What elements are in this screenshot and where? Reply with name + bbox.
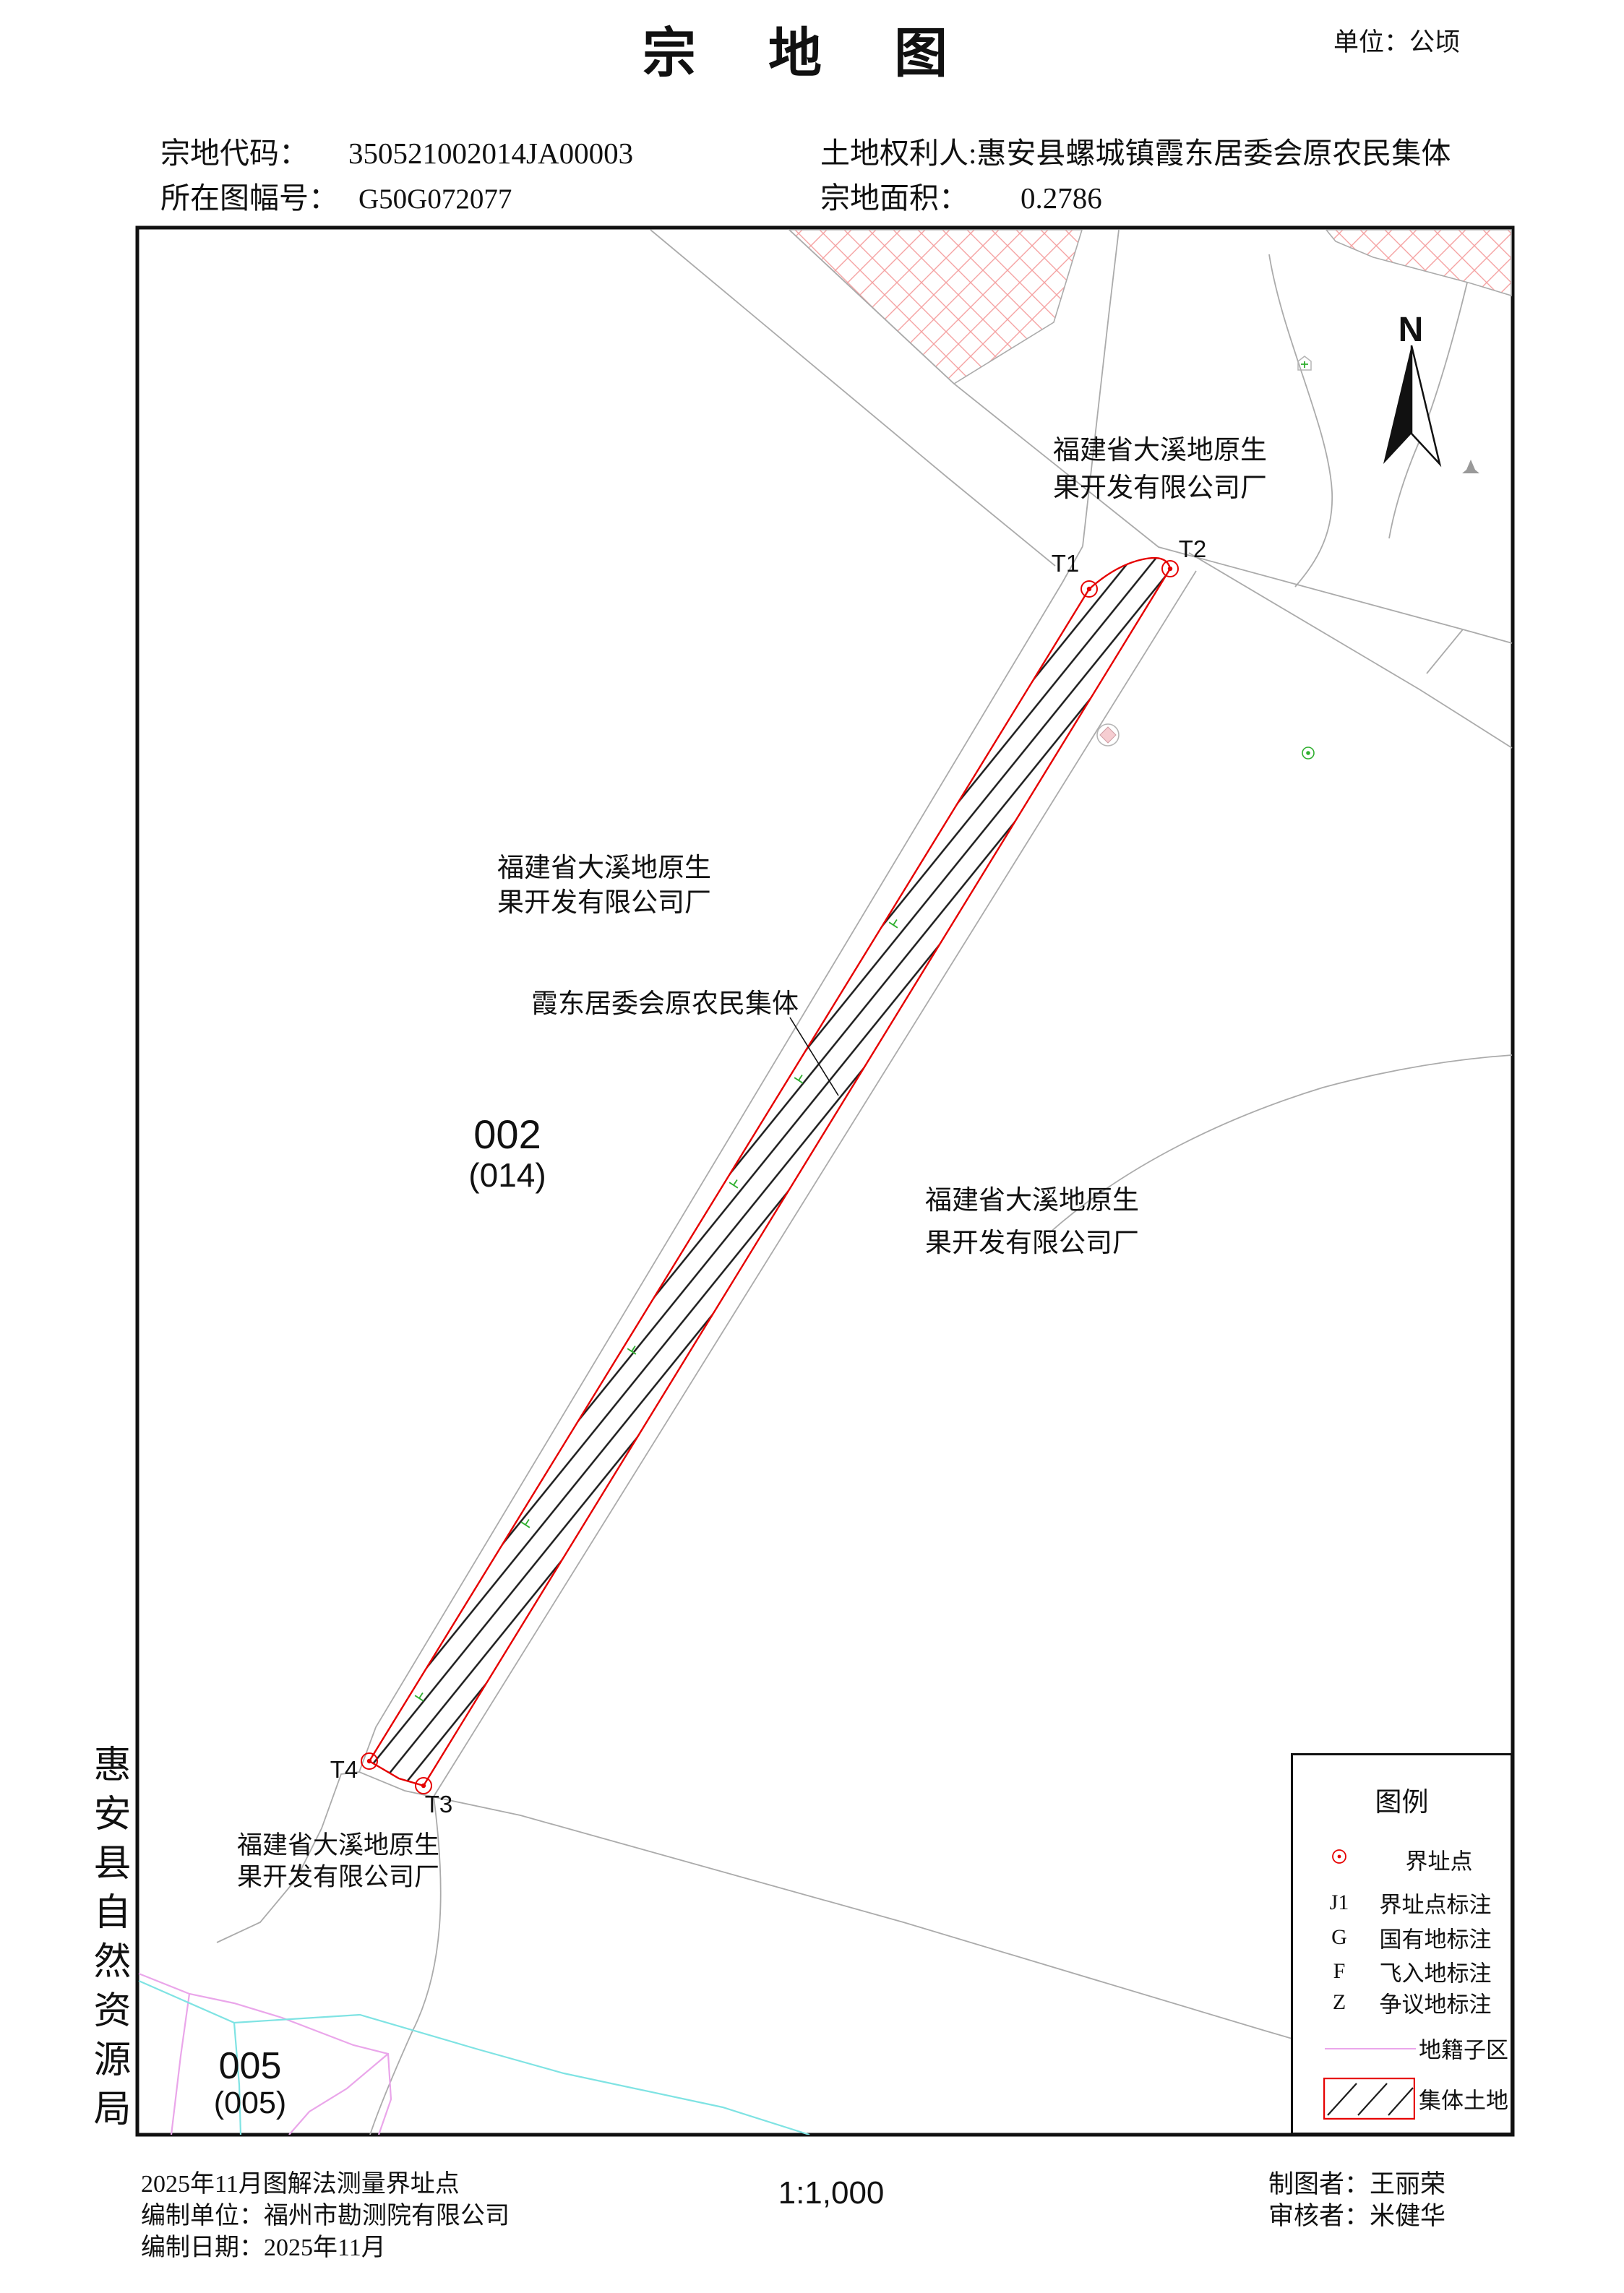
monument-symbol [1462,460,1479,473]
legend-symbol-z: Z [1333,1990,1346,2015]
legend-symbol-g: G [1331,1925,1347,1950]
legend-symbol-f: F [1333,1959,1346,1984]
boundary-line-strip-east [370,571,1196,2135]
north-label: N [1399,311,1424,349]
subzone-line-icon [1325,2048,1416,2049]
subzone-line-2 [289,2054,388,2135]
label-company-east: 福建省大溪地原生 果开发有限公司厂 [925,1179,1139,1265]
legend-label-point-anno: 界址点标注 [1380,1887,1492,1919]
parcel-map-page: 宗地图 单位：公顷 宗地代码：350521002014JA00003 所在图幅号… [0,0,1624,2293]
footer-survey-note: 2025年11月图解法测量界址点 [141,2164,460,2199]
scale-label: 1:1,000 [778,2175,885,2211]
survey-point-symbol [1097,724,1119,746]
legend-title: 图例 [1375,1780,1429,1819]
legend-row-point-anno: J1 界址点标注 [1293,1888,1511,1917]
state-land-crosshatch-area-right [1326,230,1511,296]
legend-label-boundary-point: 界址点 [1406,1844,1473,1876]
label-company-north-line1: 福建省大溪地原生 [1053,432,1267,470]
state-land-crosshatch-area-left [789,230,1082,384]
legend-label-subzone: 地籍子区 [1419,2032,1508,2065]
boundary-line-road-lower [1189,553,1512,748]
agency-vertical-title: 惠安县自然资源局 [81,1745,135,2149]
label-company-east-line2: 果开发有限公司厂 [925,1222,1139,1265]
marker-label-t3: T3 [425,1791,453,1818]
footer-compile-date: 编制日期：2025年11月 [141,2227,386,2263]
collective-hatch-icon [1323,2078,1415,2123]
label-company-north-line2: 果开发有限公司厂 [1053,470,1267,507]
legend-label-enclave-anno: 飞入地标注 [1380,1956,1492,1988]
legend-row-collective: 集体土地 [1293,2068,1511,2134]
footer-compiler: 编制单位：福州市勘测院有限公司 [141,2195,510,2231]
footer-reviewer: 审核者：米健华 [1268,2195,1445,2232]
marker-label-t1: T1 [1052,550,1080,577]
marker-label-t4: T4 [330,1756,358,1784]
legend-symbol-j1: J1 [1330,1890,1349,1915]
label-parcel-002: 002 (014) [468,1113,546,1194]
label-collective: 霞东居委会原农民集体 [531,986,799,1023]
label-company-west-line1: 福建省大溪地原生 [497,851,711,886]
parcel-005-number: 005 [214,2047,286,2086]
boundary-line-east-curve [1269,254,1332,587]
parcel-002-subnumber: (014) [468,1156,546,1194]
boundary-line-road-cross [1427,629,1463,674]
label-company-west: 福建省大溪地原生 果开发有限公司厂 [497,851,711,921]
label-company-north: 福建省大溪地原生 果开发有限公司厂 [1053,432,1267,507]
label-company-east-line1: 福建省大溪地原生 [925,1179,1139,1222]
legend-label-collective: 集体土地 [1419,2083,1508,2115]
subzone-line-3 [171,1994,189,2135]
legend-row-state-anno: G 国有地标注 [1293,1923,1511,1952]
legend-box: 图例 界址点 J1 界址点标注 G 国有地标注 F 飞入地标注 Z 争议地标注 … [1291,1753,1513,2135]
parcel-002-number: 002 [468,1113,546,1156]
label-company-south-line1: 福建省大溪地原生 [237,1830,439,1862]
north-arrow-icon [1383,345,1440,464]
parcel-005-subnumber: (005) [214,2086,286,2120]
label-company-south-line2: 果开发有限公司厂 [237,1862,439,1893]
boundary-point-icon [1330,1847,1349,1872]
label-company-south: 福建省大溪地原生 果开发有限公司厂 [237,1830,439,1893]
marker-label-t2: T2 [1179,535,1207,563]
vegetation-symbol [1302,747,1314,759]
legend-row-dispute-anno: Z 争议地标注 [1293,1988,1511,2017]
legend-label-dispute-anno: 争议地标注 [1380,1987,1492,2019]
legend-row-enclave-anno: F 飞入地标注 [1293,1957,1511,1986]
label-parcel-005: 005 (005) [214,2047,286,2120]
legend-row-boundary-point: 界址点 [1293,1845,1511,1874]
legend-label-state-anno: 国有地标注 [1380,1922,1492,1954]
label-company-west-line2: 果开发有限公司厂 [497,886,711,921]
legend-row-subzone: 地籍子区 [1293,2034,1511,2062]
